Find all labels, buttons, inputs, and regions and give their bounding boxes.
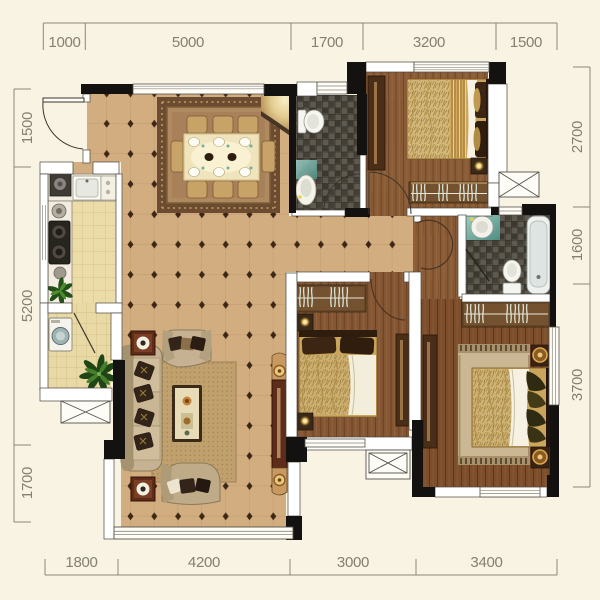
- svg-text:5200: 5200: [19, 290, 36, 322]
- svg-text:3400: 3400: [470, 554, 502, 571]
- svg-text:1700: 1700: [19, 467, 36, 499]
- svg-text:3000: 3000: [337, 554, 369, 571]
- svg-text:5000: 5000: [172, 34, 204, 51]
- svg-text:4200: 4200: [188, 554, 220, 571]
- svg-text:1800: 1800: [65, 554, 97, 571]
- svg-text:1500: 1500: [19, 112, 36, 144]
- svg-text:3200: 3200: [413, 34, 445, 51]
- svg-text:2700: 2700: [569, 121, 586, 153]
- svg-text:1700: 1700: [311, 34, 343, 51]
- svg-text:1000: 1000: [48, 34, 80, 51]
- svg-text:1600: 1600: [569, 229, 586, 261]
- svg-text:3700: 3700: [569, 369, 586, 401]
- svg-text:1500: 1500: [510, 34, 542, 51]
